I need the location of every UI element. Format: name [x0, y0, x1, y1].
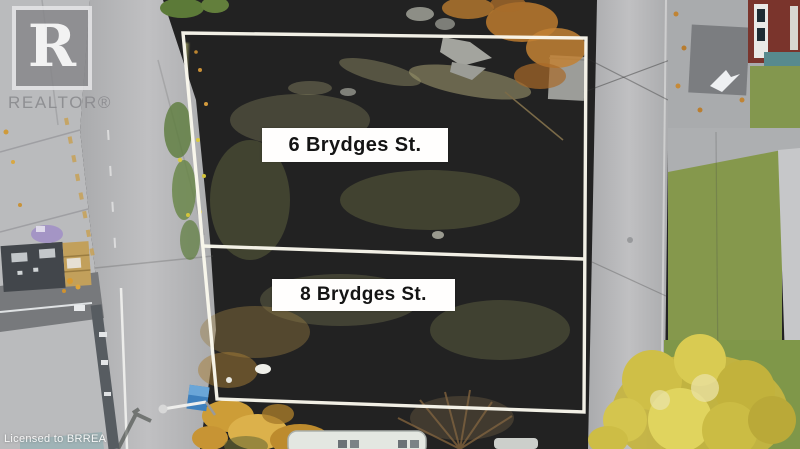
teal-awning: [764, 52, 800, 68]
parcel-label-8-brydges: 8 Brydges St.: [272, 279, 455, 311]
license-credit-text: Licensed to BRREA: [4, 433, 106, 445]
vacant-lot: [183, 2, 586, 412]
vehicle-roof: [494, 438, 538, 449]
realtor-watermark: R REALTOR®: [8, 6, 112, 113]
white-debris: [255, 364, 271, 374]
aerial-scene: [0, 0, 800, 449]
realtor-logo: R: [12, 6, 92, 90]
realtor-logo-letter: R: [28, 17, 76, 75]
parcel-label-6-brydges: 6 Brydges St.: [262, 128, 448, 162]
listing-photo: R REALTOR® 6 Brydges St. 8 Brydges St. L…: [0, 0, 800, 449]
realtor-brand-text: REALTOR®: [8, 93, 112, 113]
blue-cart: [186, 385, 209, 412]
shed-roof: [1, 242, 66, 292]
purple-tarp: [31, 225, 63, 243]
building-roof: [0, 303, 114, 449]
